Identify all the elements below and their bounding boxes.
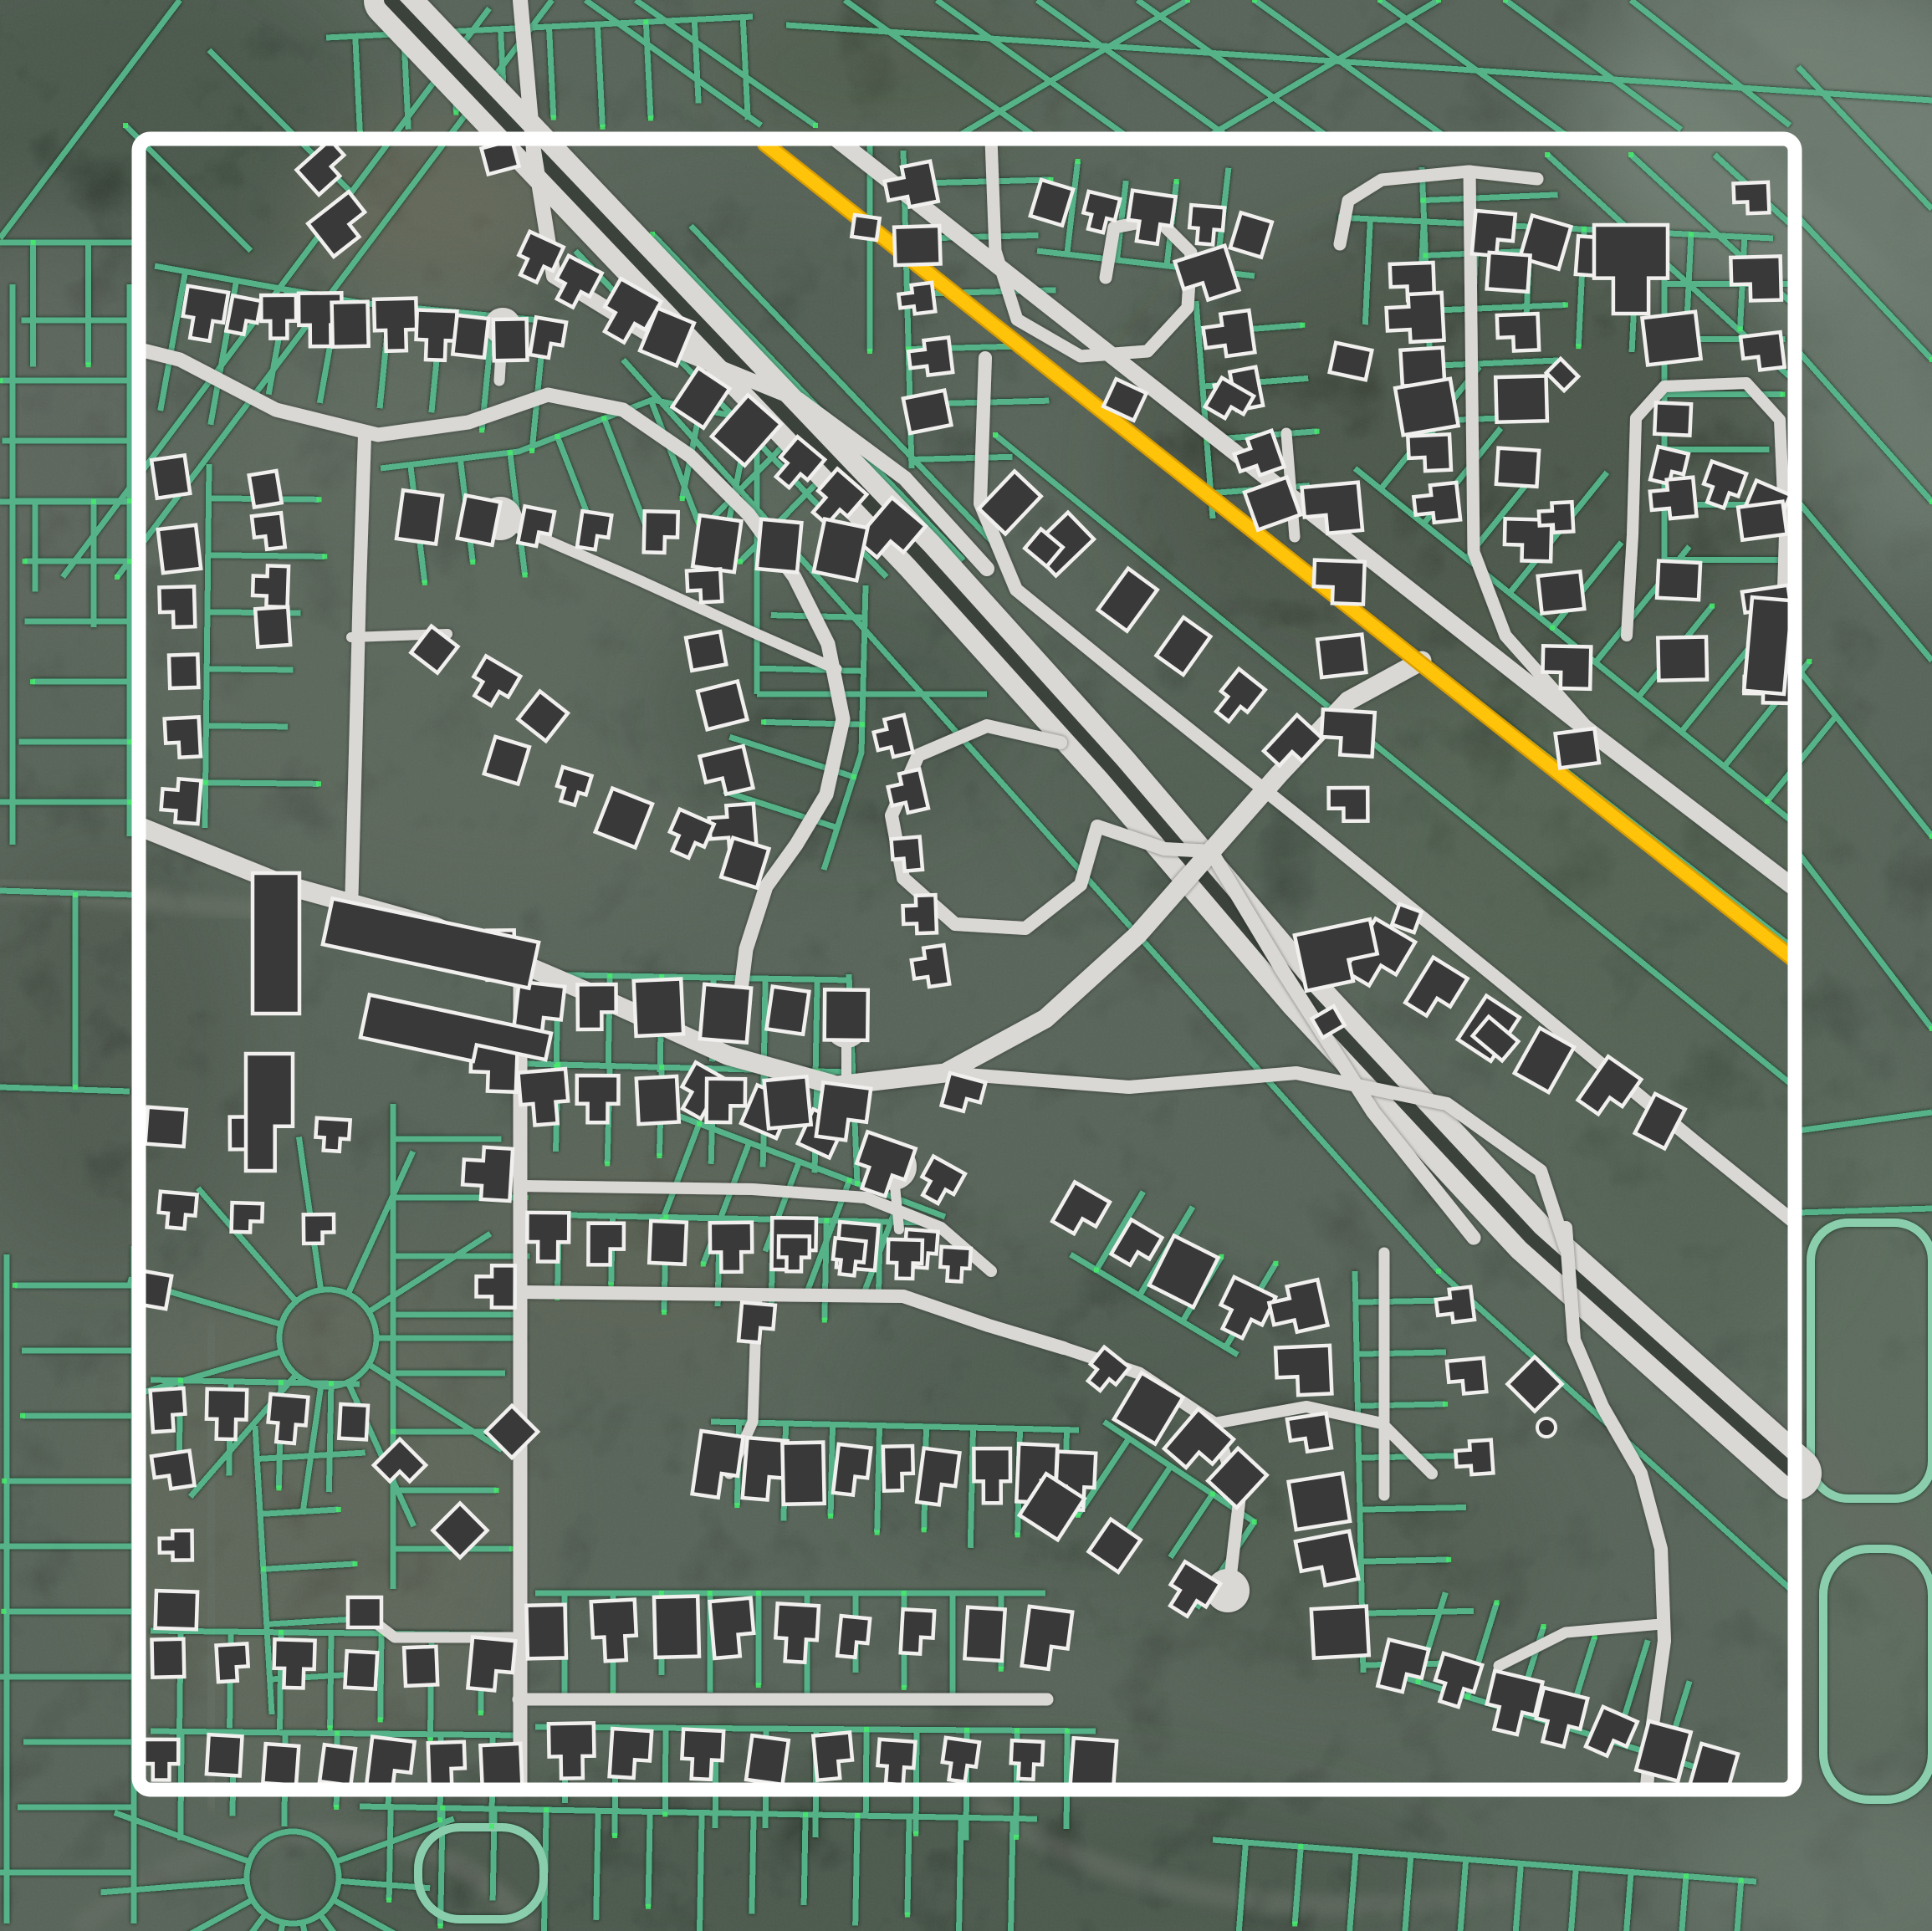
building-footprint [1317,635,1366,677]
building-footprint [764,1076,811,1128]
building-footprint [814,519,868,581]
building-footprint [146,1107,187,1147]
building-footprint [404,1647,437,1686]
building-footprint [452,315,488,358]
building-footprint [767,987,810,1034]
building-footprint [345,1651,377,1688]
building-footprint [339,1404,368,1439]
building-footprint [1657,561,1700,600]
building-footprint [1556,728,1599,768]
building-footprint [457,495,501,544]
building-footprint [263,1744,299,1785]
building-footprint [746,1735,789,1785]
building-footprint [396,490,442,544]
building-footprint [1537,1418,1556,1437]
building-footprint [253,873,299,1014]
building-footprint [649,1221,687,1264]
building-footprint [1311,1607,1369,1658]
building-footprint [1538,571,1585,613]
building-footprint [156,1591,198,1629]
building-footprint [158,525,201,573]
building-footprint [207,1734,243,1775]
building-footprint [249,471,282,508]
building-footprint [700,984,751,1043]
building-footprint [825,989,868,1040]
building-footprint [634,979,683,1036]
building-footprint [1487,253,1531,292]
building-footprint [686,631,726,671]
building-footprint [1495,376,1547,422]
building-footprint [693,515,741,572]
building-footprint [1658,637,1707,681]
map-viewport[interactable] [0,0,1932,1931]
building-footprint [348,1597,381,1627]
building-footprint [903,391,952,433]
building-footprint [654,1596,699,1658]
building-footprint [169,655,198,688]
building-footprint [1654,402,1691,435]
building-footprint [151,455,190,498]
building-footprint [319,1745,355,1785]
building-footprint [493,319,528,360]
building-footprint [964,1607,1004,1661]
building-footprint [332,302,369,347]
satellite-map-canvas[interactable] [0,0,1932,1931]
building-footprint [782,1443,824,1504]
building-footprint [255,607,290,647]
building-footprint [757,519,802,573]
building-footprint [1643,312,1701,365]
building-footprint [1289,1474,1351,1530]
building-footprint [636,1076,679,1124]
building-footprint [894,226,941,265]
building-footprint [1330,343,1372,380]
building-footprint [526,1605,566,1659]
building-footprint [152,1639,185,1678]
building-footprint [1738,502,1787,540]
building-footprint [851,215,879,240]
building-footprint [698,682,747,730]
building-footprint [1395,379,1459,436]
building-footprint [1744,597,1792,694]
building-footprint [1496,448,1539,487]
